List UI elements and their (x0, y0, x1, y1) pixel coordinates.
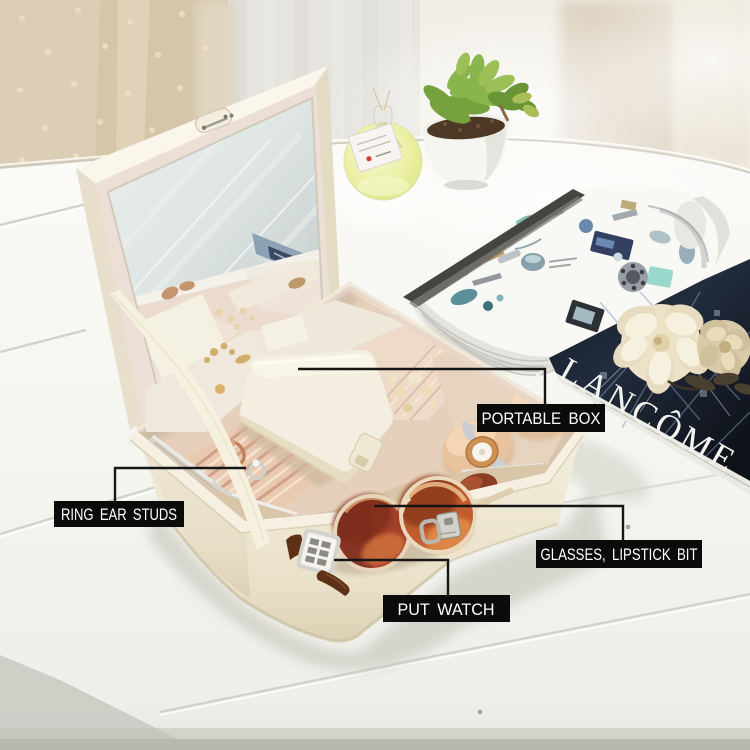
svg-text:GLASSES, LIPSTICK BIT: GLASSES, LIPSTICK BIT (541, 545, 698, 564)
svg-text:PUT WATCH: PUT WATCH (398, 600, 495, 619)
svg-text:RING EAR STUDS: RING EAR STUDS (61, 505, 177, 524)
svg-text:PORTABLE BOX: PORTABLE BOX (482, 409, 601, 428)
